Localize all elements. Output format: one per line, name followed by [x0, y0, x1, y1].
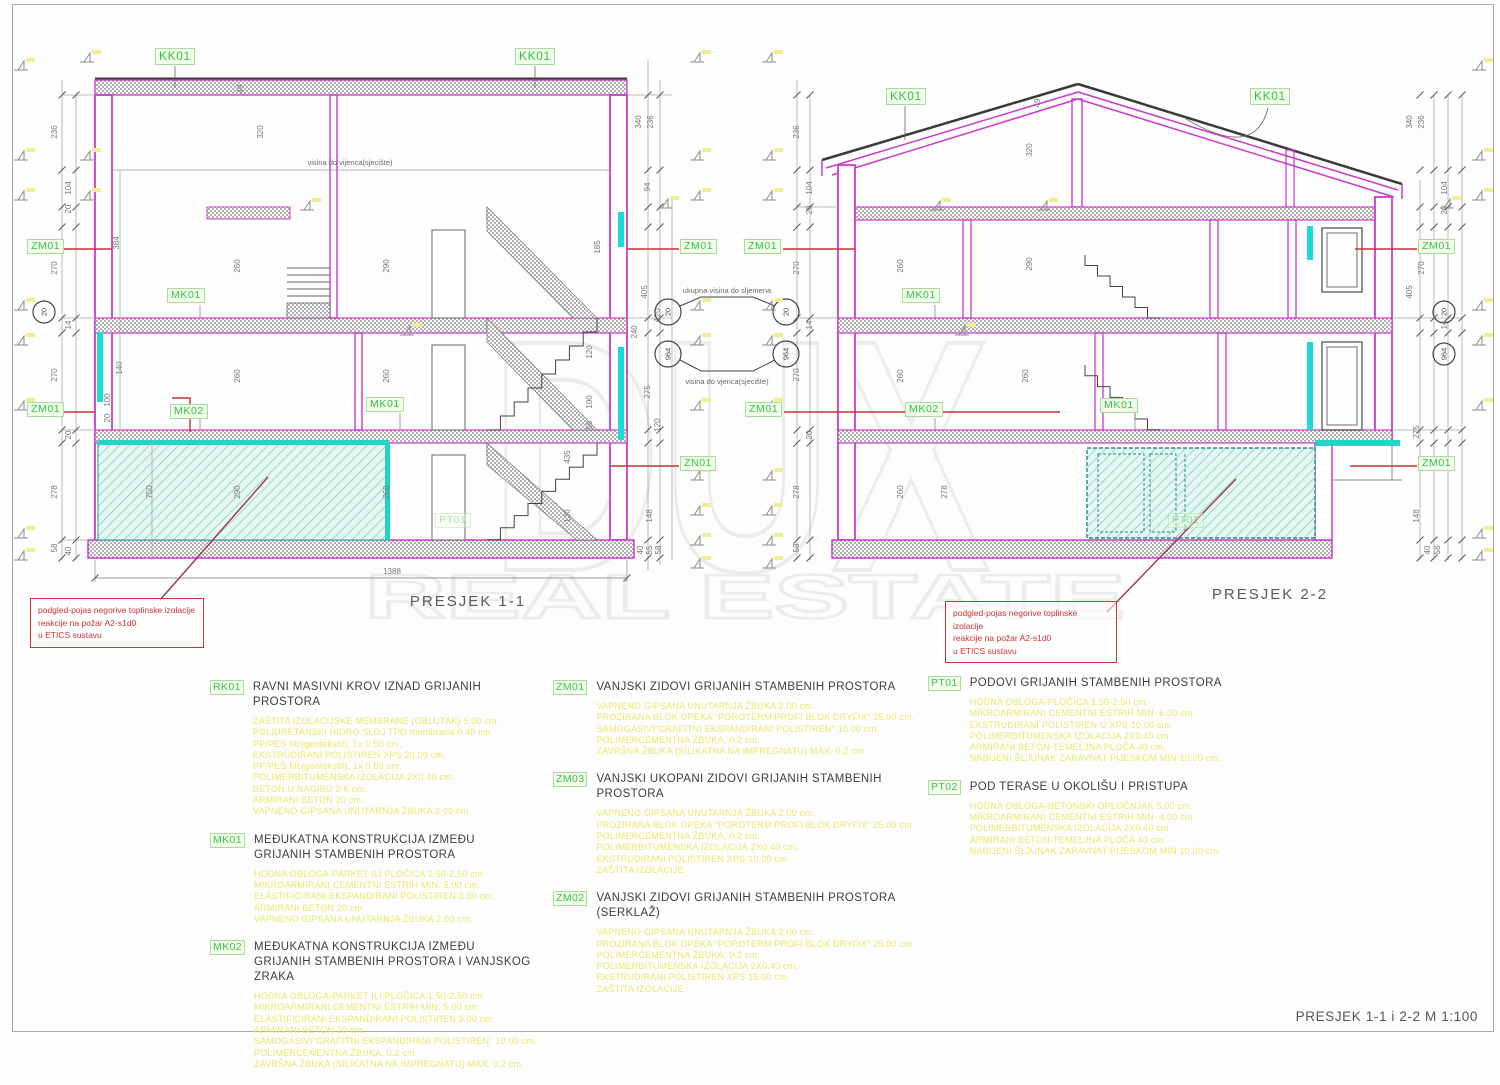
legend-layer-line: EKSTRUDIRANI POLISTIREN XPS 20.00 cm.: [253, 750, 545, 761]
legend-layer-line: ARMIRANI BETON 20 cm.: [254, 1025, 545, 1036]
yellow-mark: [1484, 333, 1493, 337]
svg-text:20: 20: [782, 308, 791, 316]
legend-layer-line: POLIMERBITUMENSKA IZOLACIJA 2X0.40 cm.: [596, 961, 918, 972]
dimension-text: 260: [233, 369, 242, 383]
legend-layer-line: POLIMERCEMENTNA ŽBUKA, 0.2 cm.: [254, 1048, 545, 1059]
legend-item: MK02 MEĐUKATNA KONSTRUKCIJA IZMEĐU GRIJA…: [210, 940, 545, 1070]
component-label-zm01: ZM01: [1418, 239, 1455, 254]
dimension-text: 340: [634, 115, 643, 129]
elevation-marker-icon: [1472, 529, 1486, 538]
window-strip: [1307, 342, 1313, 430]
yellow-mark: [1484, 58, 1493, 62]
dimension-text: 260: [382, 485, 391, 499]
foundation-slab: [88, 540, 634, 558]
legend-layer-line: ZAVRŠNA ŽBUKA (SILIKATNA NA IMPREGNATU) …: [254, 1059, 545, 1070]
component-label-zm01: ZM01: [745, 402, 782, 417]
legend-layer-line: HODNA OBLOGA-PARKET ILI PLOČICA 1.50-2.5…: [254, 991, 545, 1002]
elevation-marker-icon: [14, 401, 28, 410]
dimension-text: 270: [792, 368, 801, 382]
elevation-marker-icon: [1472, 336, 1486, 345]
component-label-kk01: KK01: [515, 48, 555, 65]
section-2-title: PRESJEK 2-2: [1212, 586, 1328, 603]
yellow-mark: [702, 556, 711, 560]
yellow-mark: [774, 468, 783, 472]
elevation-marker-icon: [690, 151, 704, 160]
dimension-text: 1388: [383, 567, 401, 576]
yellow-mark: [26, 298, 35, 302]
window: [1322, 342, 1362, 430]
dimension-text: 320: [256, 125, 265, 139]
yellow-mark: [774, 298, 783, 302]
legend-code-chip: ZM02: [553, 891, 587, 906]
legend-layer-line: ZAVRŠNA ŽBUKA (SILIKATNA NA IMPREGNATU) …: [596, 746, 914, 757]
legend-title: MEĐUKATNA KONSTRUKCIJA IZMEĐU GRIJANIH S…: [254, 940, 545, 985]
component-label-mk01: MK01: [1100, 398, 1138, 413]
legend-code-chip: MK01: [210, 833, 245, 848]
elevation-marker-icon: [762, 191, 776, 200]
svg-text:964: 964: [664, 348, 673, 361]
component-label-zn01: ZN01: [680, 456, 716, 471]
yellow-mark: [702, 188, 711, 192]
legend-layer-list: HODNA OBLOGA-PARKET ILI PLOČICA 1.50-2.5…: [254, 991, 545, 1070]
legend-layer-line: VAPNENO GIPSANA UNUTARNJA ŽBUKA 2.00 cm.: [596, 701, 914, 712]
elevation-marker-icon: [762, 53, 776, 62]
dimension-text: 270: [792, 261, 801, 275]
yellow-mark: [26, 548, 35, 552]
legend-layer-line: ELASTIFICIRANI EKSPANDIRANI POLISTIREN 3…: [254, 1014, 545, 1025]
legend-layer-line: VAPNENO GIPSANA UNUTARNJA ŽBUKA 2.00 cm.: [254, 914, 495, 925]
legend-layer-line: PP/PES filc(geotekstil), 1x 0.50 cm.: [253, 761, 545, 772]
yellow-mark: [702, 298, 711, 302]
dimension-text: 185: [593, 240, 602, 254]
ridge-height-note: ukupna visina do sljemena: [683, 286, 772, 295]
fire-insulation-note-box: podgled-pojas negorive toplinske izolaci…: [30, 598, 204, 648]
legend-layer-list: HODNA OBLOGA-PLOČICA 1.50-2.50 cm.MIKROA…: [970, 697, 1222, 765]
dimension-text: 260: [896, 369, 905, 383]
legend-layer-line: ARMIRANI BETON-TEMELJNA PLOČA 40 cm.: [970, 835, 1221, 846]
yellow-mark: [26, 188, 35, 192]
legend-layer-list: HODNA OBLOGA-PARKET ILI PLOČICA 1.50-2.5…: [254, 869, 495, 925]
yellow-mark: [1484, 548, 1493, 552]
legend-layer-line: POLIMERCEMENTNA ŽBUKA, 0.2 cm.: [596, 950, 918, 961]
dimension-text: 148: [645, 509, 654, 523]
dimension-text: 58: [792, 543, 801, 552]
legend-layer-line: EKSTRUDIRANI POLISTIREN XPS 10.00 cm.: [596, 854, 918, 865]
legend-layer-line: BETON U NAGIBU 2-6 cm.: [253, 784, 545, 795]
legend-layer-line: PROZIRANA BLOK OPEKA "POROTERM PROFI BLO…: [596, 939, 918, 950]
component-label-mk02: MK02: [170, 404, 208, 419]
dimension-text: 278: [940, 485, 949, 499]
legend-layer-line: HODNA OBLOGA-PLOČICA 1.50-2.50 cm.: [970, 697, 1222, 708]
elevation-marker-icon: [14, 529, 28, 538]
elevation-marker-icon: [1472, 191, 1486, 200]
svg-text:20: 20: [40, 308, 49, 316]
yellow-mark: [702, 148, 711, 152]
legend-layer-line: PROZIRANA BLOK OPEKA "POROTERM PROFI BLO…: [596, 712, 914, 723]
dimension-text: 104: [805, 181, 814, 195]
yellow-mark: [702, 398, 711, 402]
dimension-text: 55: [645, 545, 654, 554]
dimension-text: 100: [103, 393, 112, 407]
legend-column-slabs: PT01 PODOVI GRIJANIH STAMBENIH PROSTORA …: [928, 676, 1263, 872]
dimension-text: 260: [896, 259, 905, 273]
dimension-text: 20: [805, 430, 814, 439]
legend-layer-line: MIKROARMIRANI CEMENTNI ESTRIH MIN. 6.00 …: [970, 708, 1222, 719]
legend-layer-line: POLIURETANSKI HIDRO SLOJ TPO membrana 0.…: [253, 727, 545, 738]
dimension-text: 236: [646, 115, 655, 129]
legend-layer-line: ARMIRANI BETON-TEMELJNA PLOČA 40 cm.: [970, 742, 1222, 753]
dimension-tick: [1417, 167, 1424, 174]
component-label-pt01: PT01: [1168, 513, 1204, 528]
dimension-text: 275: [643, 385, 652, 399]
door-opening: [432, 230, 465, 318]
legend-layer-list: VAPNENO GIPSANA UNUTARNJA ŽBUKA 2.00 cm.…: [596, 808, 918, 876]
yellow-mark: [92, 148, 101, 152]
dimension-text: 14: [64, 320, 73, 329]
legend-title: PODOVI GRIJANIH STAMBENIH PROSTORA: [970, 676, 1222, 691]
legend-item: RK01 RAVNI MASIVNI KROV IZNAD GRIJANIH P…: [210, 680, 545, 818]
dimension-text: 49: [1033, 98, 1042, 107]
elevation-marker-icon: [80, 53, 94, 62]
dimension-text: 40: [64, 546, 73, 555]
yellow-mark: [26, 333, 35, 337]
dimension-text: 20: [103, 413, 112, 422]
legend-title: POD TERASE U OKOLIŠU I PRISTUPA: [970, 780, 1221, 795]
dimension-text: 120: [585, 345, 594, 359]
component-label-zm01: ZM01: [744, 239, 781, 254]
yellow-mark: [92, 50, 101, 54]
legend-layer-line: VAPNENO GIPSANA UNUTARNJA ŽBUKA 2.00 cm.: [596, 927, 918, 938]
note-line: podgled-pojas negorive toplinske izolaci…: [38, 604, 196, 617]
legend-item: MK01 MEĐUKATNA KONSTRUKCIJA IZMEĐU GRIJA…: [210, 833, 545, 925]
dimension-text: 100: [585, 395, 594, 409]
component-label-mk01: MK01: [167, 288, 205, 303]
legend-title: MEĐUKATNA KONSTRUKCIJA IZMEĐU GRIJANIH S…: [254, 833, 495, 863]
dimension-text: 58: [654, 545, 663, 554]
dimension-text: 20: [805, 205, 814, 214]
door-opening: [432, 345, 465, 430]
dimension-text: 14: [805, 320, 814, 329]
yellow-mark: [774, 503, 783, 507]
yellow-mark: [412, 323, 421, 327]
component-label-kk01: KK01: [1250, 88, 1290, 105]
fire-insulation-note-box: podgled-pojas negorive toplinske izolaci…: [945, 601, 1117, 663]
legend-column-walls: ZM01 VANJSKI ZIDOVI GRIJANIH STAMBENIH P…: [553, 680, 918, 1010]
dimension-text: 260: [1021, 369, 1030, 383]
dimension-text: 40: [1423, 545, 1432, 554]
section-1-title: PRESJEK 1-1: [410, 593, 526, 610]
dimension-text: 236: [792, 125, 801, 139]
dimension-text: 750: [145, 485, 154, 499]
dimension-text: 275: [1412, 425, 1421, 439]
legend-layer-line: POLIMERBITUMENSKA IZOLACIJA 2X0.40 cm.: [253, 772, 545, 783]
window-strip: [97, 332, 103, 402]
elevation-marker-icon: [690, 53, 704, 62]
legend-column-roof-floors: RK01 RAVNI MASIVNI KROV IZNAD GRIJANIH P…: [210, 680, 545, 1085]
dimension-text: 290: [1025, 257, 1034, 271]
dimension-text: 278: [792, 485, 801, 499]
dimension-text: 55: [585, 420, 594, 429]
elevation-marker-icon: [14, 301, 28, 310]
yellow-mark: [312, 198, 321, 202]
legend-item: ZM02 VANJSKI ZIDOVI GRIJANIH STAMBENIH P…: [553, 891, 918, 995]
component-label-kk01: KK01: [886, 88, 926, 105]
yellow-mark: [670, 196, 679, 200]
legend-layer-line: ZAŠTITA IZOLACIJE: [596, 984, 918, 995]
eave-line-label: visina do vijenca(sjecište): [307, 158, 393, 167]
dimension-text: 104: [64, 181, 73, 195]
drawing-sheet: { "sheet": { "title": "PRESJEK 1-1 i 2-2…: [0, 0, 1500, 1034]
elevation-marker-icon: [1472, 61, 1486, 70]
yellow-mark: [702, 503, 711, 507]
shelf-lines: [287, 268, 330, 296]
dimension-text: 405: [1405, 285, 1414, 299]
dimension-text: 40: [636, 545, 645, 554]
yellow-mark: [967, 323, 976, 327]
yellow-mark: [774, 148, 783, 152]
note-line: podgled-pojas negorive toplinske izolaci…: [953, 607, 1109, 632]
legend-layer-line: VAPNENO GIPSANA UNUTARNJA ŽBUKA 2.00 cm.: [596, 808, 918, 819]
yellow-mark: [1484, 298, 1493, 302]
elevation-marker-icon: [300, 201, 314, 210]
yellow-mark: [702, 533, 711, 537]
dimension-text: 435: [563, 450, 572, 464]
component-label-mk01: MK01: [366, 397, 404, 412]
legend-layer-list: HODNA OBLOGA-BETONSKI OPLOČNJAK 5.00 cm.…: [970, 801, 1221, 857]
elevation-marker-icon: [14, 551, 28, 560]
legend-layer-line: ZAŠTITA IZOLACIJE: [596, 865, 918, 876]
legend-layer-line: ZAŠTITA IZOLACIJSKE MEMBRANE (OBLUTAK) 5…: [253, 716, 545, 727]
dimension-text: 20: [64, 204, 73, 213]
dimension-text: 58: [1433, 545, 1442, 554]
note-line: reakcije na požar A2-s1d0: [38, 617, 196, 630]
yellow-mark: [774, 188, 783, 192]
ground-slab: [838, 430, 1392, 443]
dimension-text: 104: [1440, 181, 1449, 195]
dimension-text: 270: [50, 261, 59, 275]
legend-layer-line: MIKROARMIRANI CEMENTNI ESTRIH MIN. 4.00 …: [970, 812, 1221, 823]
dimension-text: 260: [896, 485, 905, 499]
legend-code-chip: ZM03: [553, 772, 587, 787]
dimension-text: 58: [50, 543, 59, 552]
legend-item: PT01 PODOVI GRIJANIH STAMBENIH PROSTORA …: [928, 676, 1263, 765]
legend-layer-line: EKSTRUDIRANI POLISTIREN XPS 15.00 cm.: [596, 972, 918, 983]
legend-title: VANJSKI UKOPANI ZIDOVI GRIJANIH STAMBENI…: [596, 772, 918, 802]
yellow-mark: [92, 188, 101, 192]
legend-item: PT02 POD TERASE U OKOLIŠU I PRISTUPA HOD…: [928, 780, 1263, 857]
dimension-text: 236: [50, 125, 59, 139]
legend-layer-line: MIKROARMIRANI CEMENTNI ESTRIH MIN. 5.00 …: [254, 880, 495, 891]
dimension-text: 120: [653, 308, 662, 322]
legend-layer-line: MIKROARMIRANI CEMENTNI ESTRIH MIN. 5.00 …: [254, 1002, 545, 1013]
legend-layer-line: ARMIRANI BETON 20 cm.: [253, 795, 545, 806]
legend-item: ZM01 VANJSKI ZIDOVI GRIJANIH STAMBENIH P…: [553, 680, 918, 757]
svg-text:964: 964: [1440, 348, 1449, 361]
elevation-marker-icon: [1472, 151, 1486, 160]
yellow-mark: [26, 526, 35, 530]
legend-code-chip: MK02: [210, 940, 245, 955]
legend-layer-line: POLIMERCEMENTNA ŽBUKA, 0.2 cm.: [596, 831, 918, 842]
dimension-text: 270: [1417, 261, 1426, 275]
legend-layer-list: VAPNENO GIPSANA UNUTARNJA ŽBUKA 2.00 cm.…: [596, 927, 918, 995]
legend-layer-line: SAMOGASIVI"GRAFITNI EKSPANDIRANI POLISTI…: [596, 724, 914, 735]
yellow-mark: [26, 148, 35, 152]
dimension-text: 405: [640, 285, 649, 299]
dimension-text: 20: [64, 430, 73, 439]
dimension-tick: [1417, 92, 1424, 99]
yellow-mark: [1049, 198, 1058, 202]
legend-item: ZM03 VANJSKI UKOPANI ZIDOVI GRIJANIH STA…: [553, 772, 918, 876]
yellow-mark: [774, 333, 783, 337]
window-strip: [618, 212, 624, 247]
yellow-mark: [942, 198, 951, 202]
window-strip: [618, 347, 624, 440]
yellow-mark: [1484, 398, 1493, 402]
dimension-text: 270: [50, 368, 59, 382]
elevation-marker-icon: [1472, 401, 1486, 410]
elevation-marker-icon: [14, 336, 28, 345]
yellow-mark: [26, 58, 35, 62]
legend-code-chip: RK01: [210, 680, 244, 695]
dimension-text: 290: [382, 259, 391, 273]
left-wall: [838, 165, 855, 540]
component-label-zm01: ZM01: [27, 402, 64, 417]
legend-layer-line: HODNA OBLOGA-BETONSKI OPLOČNJAK 5.00 cm.: [970, 801, 1221, 812]
yellow-mark: [1452, 196, 1461, 200]
legend-layer-line: SAMOGASIVI"GRAFITNI EKSPANDIRANI POLISTI…: [254, 1036, 545, 1047]
component-label-zm01: ZM01: [1418, 456, 1455, 471]
legend-layer-line: POLIMERBITUMENSKA IZOLACIJA 2X0.40 cm.: [970, 731, 1222, 742]
foundation-slab: [832, 540, 1332, 558]
yellow-mark: [774, 556, 783, 560]
floor-slab: [95, 318, 627, 333]
dimension-text: 290: [233, 485, 242, 499]
dimension-text: 260: [382, 369, 391, 383]
dimension-text: 340: [1405, 115, 1414, 129]
yellow-mark: [1484, 188, 1493, 192]
legend-title: VANJSKI ZIDOVI GRIJANIH STAMBENIH PROSTO…: [596, 680, 914, 695]
legend-layer-line: VAPNENO GIPSANA UNUTARNJA ŽBUKA 2.00 cm.: [253, 806, 545, 817]
legend-code-chip: PT01: [928, 676, 961, 691]
insulation-zone: [98, 444, 388, 540]
yellow-mark: [1484, 148, 1493, 152]
legend-title: RAVNI MASIVNI KROV IZNAD GRIJANIH PROSTO…: [253, 680, 545, 710]
svg-text:20: 20: [1440, 308, 1449, 316]
window-strip: [1307, 226, 1313, 260]
legend-layer-line: POLIMERBITUMENSKA IZOLACIJA 2X0.40 cm.: [596, 842, 918, 853]
dimension-text: 278: [50, 485, 59, 499]
dimension-text: 130: [563, 509, 572, 523]
ridge-wall: [1072, 99, 1082, 207]
dimension-text: 49: [236, 84, 245, 93]
component-label-zm01: ZM01: [680, 239, 717, 254]
attic-slab: [855, 207, 1375, 220]
elevation-marker-icon: [690, 191, 704, 200]
legend-title: VANJSKI ZIDOVI GRIJANIH STAMBENIH PROSTO…: [596, 891, 918, 921]
elevation-marker-icon: [14, 191, 28, 200]
elevation-marker-icon: [762, 151, 776, 160]
legend-layer-line: HODNA OBLOGA-PARKET ILI PLOČICA 1.50-2.5…: [254, 869, 495, 880]
legend-code-chip: PT02: [928, 780, 961, 795]
yellow-mark: [1484, 526, 1493, 530]
elevation-marker-icon: [1472, 301, 1486, 310]
yellow-mark: [774, 50, 783, 54]
legend-layer-line: PP/PES filc(geotekstil), 1x 0.50 cm.: [253, 739, 545, 750]
dimension-text: 240: [630, 325, 639, 339]
legend-layer-list: ZAŠTITA IZOLACIJSKE MEMBRANE (OBLUTAK) 5…: [253, 716, 545, 818]
legend-layer-line: POLIMERBITUMENSKA IZOLACIJA 2X0.40 cm.: [970, 823, 1221, 834]
window: [1322, 228, 1362, 292]
legend-layer-line: PROZIRANA BLOK OPEKA "POROTERM PROFI BLO…: [596, 820, 918, 831]
component-label-mk02: MK02: [905, 402, 943, 417]
elevation-marker-icon: [80, 151, 94, 160]
elevation-marker-icon: [1472, 551, 1486, 560]
component-label-mk01: MK01: [902, 288, 940, 303]
legend-layer-line: NABIJENI ŠLJUNAK ZARAVNAT PIJESKOM MIN 1…: [970, 846, 1221, 857]
note-line: u ETICS sustavu: [38, 629, 196, 642]
legend-layer-line: POLIMERCEMENTNA ŽBUKA, 0.2 cm.: [596, 735, 914, 746]
floor-slab: [838, 318, 1392, 333]
eave-height-note: visina do vjenca(sjecište): [685, 377, 769, 386]
dimension-text: 140: [115, 361, 124, 375]
elevation-marker-icon: [14, 151, 28, 160]
legend-layer-line: ELASTIFICIRANI EKSPANDIRANI POLISTIREN 3…: [254, 891, 495, 902]
yellow-mark: [702, 333, 711, 337]
dimension-text: 94: [643, 182, 652, 191]
note-line: u ETICS sustavu: [953, 645, 1109, 658]
dimension-text: 384: [112, 236, 121, 250]
svg-text:20: 20: [664, 308, 673, 316]
yellow-mark: [774, 533, 783, 537]
component-label-zm01: ZM01: [27, 239, 64, 254]
note-line: reakcije na požar A2-s1d0: [953, 632, 1109, 645]
elevation-marker-icon: [80, 191, 94, 200]
legend-layer-list: VAPNENO GIPSANA UNUTARNJA ŽBUKA 2.00 cm.…: [596, 701, 914, 757]
dimension-text: 148: [1412, 509, 1421, 523]
elevation-marker-icon: [14, 61, 28, 70]
legend-layer-line: EKSTRUDIRANI POLISTIREN U XPS 10.00 cm.: [970, 720, 1222, 731]
legend-layer-line: NABIJENI ŠLJUNAK ZARAVNAT PIJESKOM MIN 1…: [970, 753, 1222, 764]
sheet-title: PRESJEK 1-1 i 2-2 M 1:100: [1296, 1009, 1478, 1024]
yellow-mark: [702, 50, 711, 54]
dimension-text: 236: [1417, 115, 1426, 129]
component-label-pt01: PT01: [435, 513, 471, 528]
component-label-kk01: KK01: [155, 48, 195, 65]
svg-text:964: 964: [782, 348, 791, 361]
legend-layer-line: ARMIRANI BETON 20 cm.: [254, 903, 495, 914]
dimension-text: 260: [233, 259, 242, 273]
legend-code-chip: ZM01: [553, 680, 587, 695]
dimension-text: 320: [1025, 143, 1034, 157]
